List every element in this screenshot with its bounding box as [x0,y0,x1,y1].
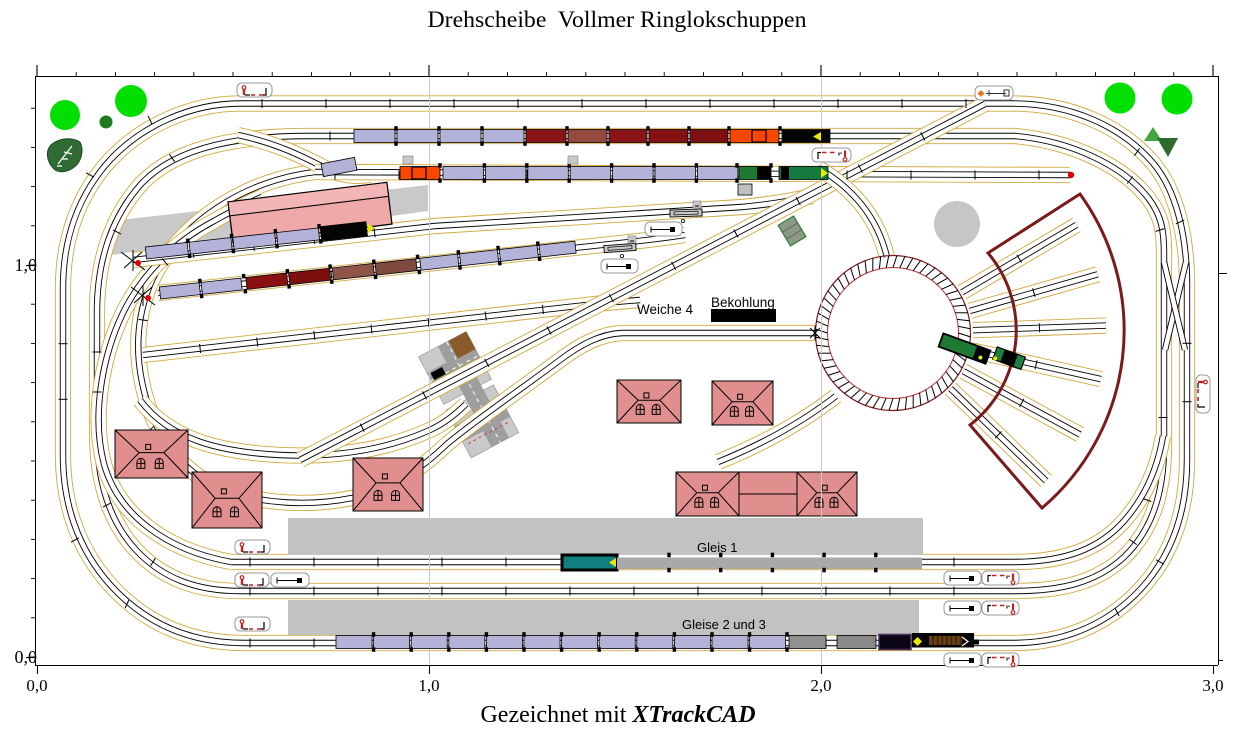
svg-text:0,0: 0,0 [15,647,38,667]
svg-text:Gleis 1: Gleis 1 [697,540,737,555]
svg-text:3,0: 3,0 [1202,676,1223,695]
svg-text:Bekohlung: Bekohlung [711,295,775,310]
svg-text:1,0: 1,0 [418,676,439,695]
svg-text:0,0: 0,0 [26,676,47,695]
svg-text:2,0: 2,0 [810,676,831,695]
svg-text:1,0: 1,0 [15,255,38,275]
svg-text:Gleise 2 und 3: Gleise 2 und 3 [682,617,766,632]
svg-text:Gezeichnet mit XTrackCAD: Gezeichnet mit XTrackCAD [480,702,755,728]
svg-text:Weiche 4: Weiche 4 [637,302,694,317]
svg-text:Drehscheibe Vollmer Ringloksc: Drehscheibe Vollmer Ringlokschuppen [428,7,808,32]
